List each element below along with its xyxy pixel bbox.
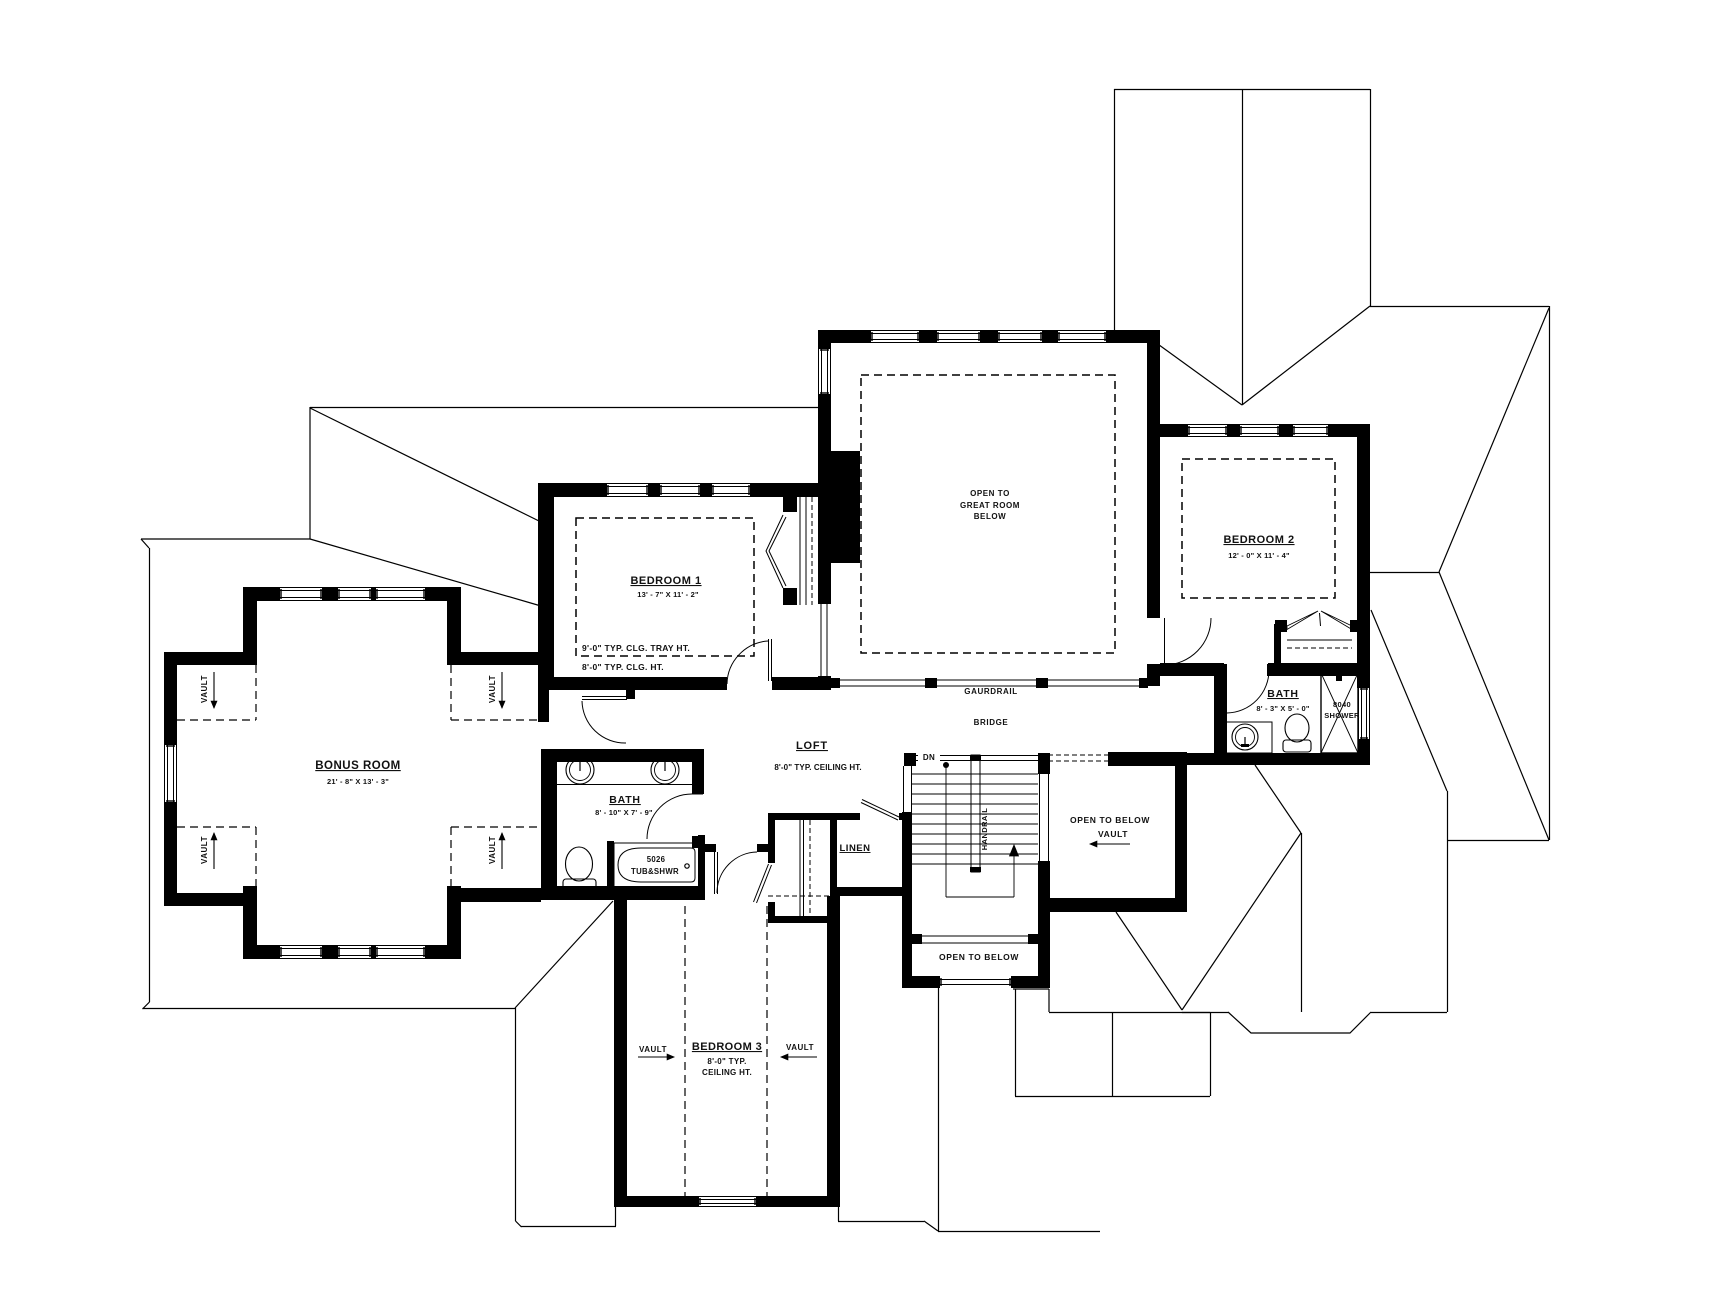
svg-text:13' - 7" X 11' - 2": 13' - 7" X 11' - 2" [637, 590, 699, 599]
svg-text:VAULT: VAULT [488, 836, 497, 864]
svg-text:8040: 8040 [1333, 700, 1351, 709]
svg-text:BATH: BATH [1267, 688, 1299, 700]
svg-text:BEDROOM 2: BEDROOM 2 [1223, 534, 1294, 546]
svg-text:21' - 8" X 13' - 3": 21' - 8" X 13' - 3" [327, 777, 389, 786]
svg-text:LINEN: LINEN [840, 843, 871, 854]
svg-text:HANDRAIL: HANDRAIL [980, 808, 989, 850]
svg-text:BEDROOM 1: BEDROOM 1 [630, 575, 701, 587]
svg-text:8'-0" TYP.: 8'-0" TYP. [707, 1057, 746, 1066]
svg-text:GREAT ROOM: GREAT ROOM [960, 501, 1020, 510]
svg-text:BEDROOM 3: BEDROOM 3 [692, 1041, 762, 1053]
svg-text:BONUS ROOM: BONUS ROOM [315, 760, 401, 772]
svg-text:OPEN TO BELOW: OPEN TO BELOW [939, 952, 1019, 962]
svg-text:BRIDGE: BRIDGE [974, 718, 1009, 727]
svg-text:TUB&SHWR: TUB&SHWR [631, 867, 679, 876]
svg-text:OPEN TO: OPEN TO [970, 489, 1010, 498]
svg-text:VAULT: VAULT [639, 1045, 667, 1054]
svg-text:8' - 10" X 7' - 9": 8' - 10" X 7' - 9" [595, 808, 653, 817]
svg-text:VAULT: VAULT [200, 836, 209, 864]
svg-text:8'-0" TYP. CEILING HT.: 8'-0" TYP. CEILING HT. [774, 763, 861, 772]
svg-text:VAULT: VAULT [1098, 829, 1128, 839]
svg-text:GAURDRAIL: GAURDRAIL [964, 687, 1017, 696]
svg-text:CEILING HT.: CEILING HT. [702, 1068, 752, 1077]
svg-text:BATH: BATH [609, 794, 641, 806]
svg-text:VAULT: VAULT [200, 675, 209, 703]
svg-text:9'-0" TYP. CLG. TRAY HT.: 9'-0" TYP. CLG. TRAY HT. [582, 643, 690, 653]
svg-text:8'-0" TYP. CLG. HT.: 8'-0" TYP. CLG. HT. [582, 662, 664, 672]
svg-text:12' - 0" X 11' - 4": 12' - 0" X 11' - 4" [1228, 551, 1290, 560]
svg-text:VAULT: VAULT [488, 675, 497, 703]
svg-text:VAULT: VAULT [786, 1043, 814, 1052]
svg-text:LOFT: LOFT [796, 740, 828, 752]
svg-text:8' - 3" X 5' - 0": 8' - 3" X 5' - 0" [1256, 704, 1310, 713]
svg-text:DN: DN [923, 753, 935, 762]
svg-text:SHOWER: SHOWER [1324, 711, 1360, 720]
svg-text:OPEN TO BELOW: OPEN TO BELOW [1070, 815, 1150, 825]
svg-text:BELOW: BELOW [974, 512, 1007, 521]
svg-text:5026: 5026 [647, 855, 666, 864]
